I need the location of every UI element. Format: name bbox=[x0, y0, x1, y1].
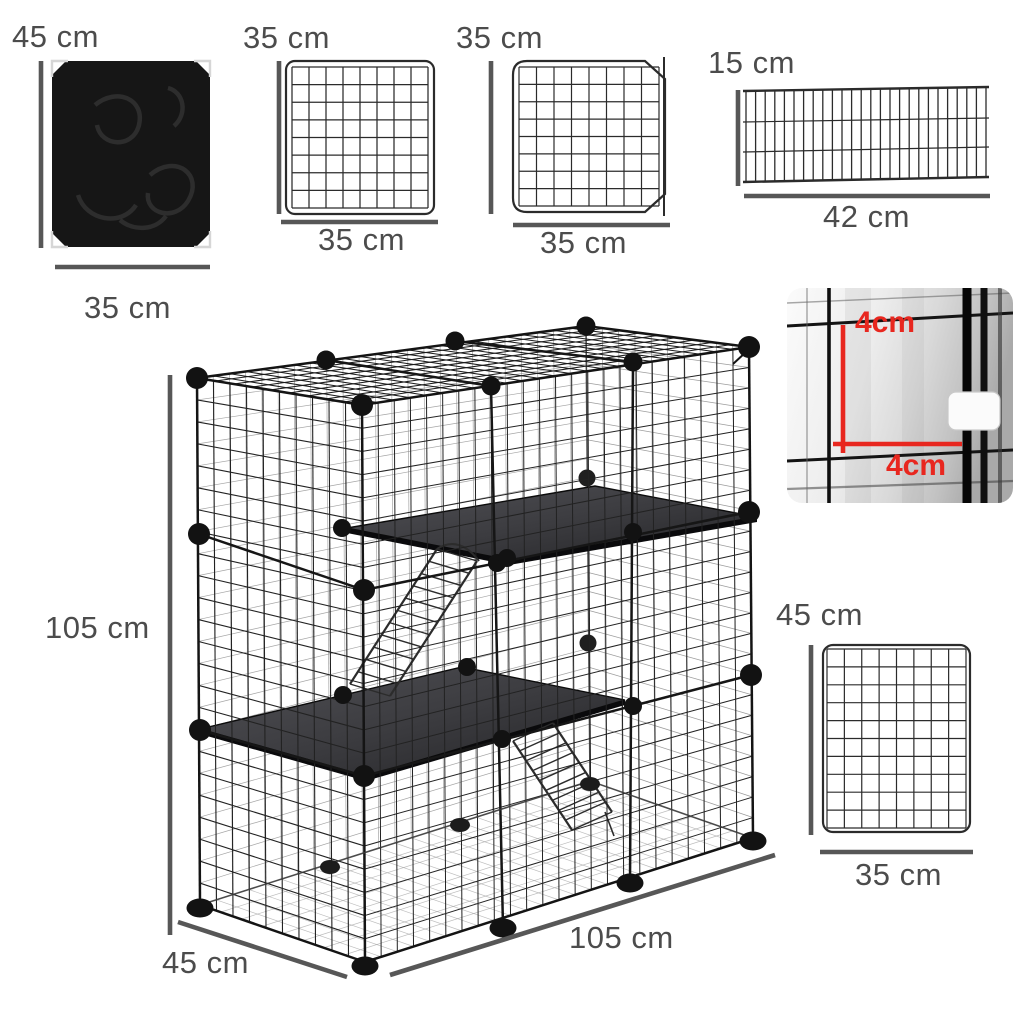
fabric-panel-graphic bbox=[52, 61, 210, 247]
side-panel-height-label: 45 cm bbox=[776, 598, 863, 632]
cage-height-label: 105 cm bbox=[45, 611, 150, 645]
door-panel-graphic bbox=[513, 57, 665, 216]
ramp-panel-width-label: 42 cm bbox=[823, 200, 910, 234]
side-panel-width-label: 35 cm bbox=[855, 858, 942, 892]
grid-panel-width-label: 35 cm bbox=[318, 223, 405, 257]
assembled-cage-graphic bbox=[186, 317, 767, 976]
mesh-detail-vertical-label: 4cm bbox=[855, 306, 915, 339]
ramp-panel-graphic bbox=[743, 87, 989, 182]
side-panel-graphic bbox=[823, 645, 970, 832]
door-panel-height-label: 35 cm bbox=[456, 21, 543, 55]
fabric-panel-height-label: 45 cm bbox=[12, 20, 99, 54]
grid-panel-height-label: 35 cm bbox=[243, 21, 330, 55]
ramp-panel-height-label: 15 cm bbox=[708, 46, 795, 80]
grid-panel-graphic bbox=[286, 61, 434, 214]
cage-width-label: 105 cm bbox=[569, 921, 674, 955]
cage-depth-label: 45 cm bbox=[162, 946, 249, 980]
fabric-panel-width-label: 35 cm bbox=[84, 291, 171, 325]
product-dimension-diagram: 45 cm 35 cm 35 cm 35 cm 35 cm 35 cm 15 c… bbox=[0, 0, 1024, 1024]
mesh-detail-horizontal-label: 4cm bbox=[886, 449, 946, 482]
door-panel-width-label: 35 cm bbox=[540, 226, 627, 260]
